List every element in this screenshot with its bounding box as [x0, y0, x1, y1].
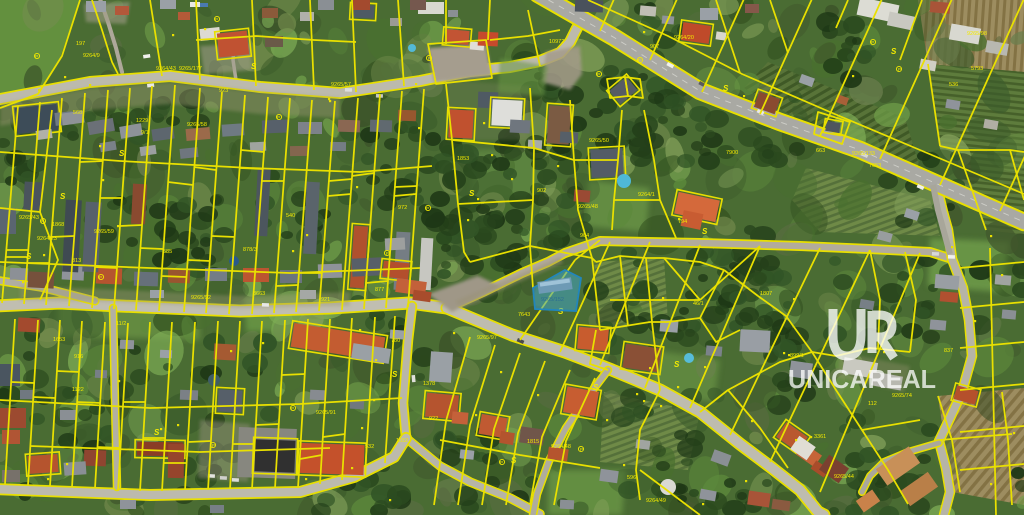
svg-text:922: 922 [429, 416, 438, 422]
svg-text:197: 197 [76, 41, 85, 47]
svg-text:S: S [60, 192, 66, 201]
svg-text:877: 877 [375, 287, 384, 293]
svg-text:9265/58: 9265/58 [187, 122, 207, 128]
svg-text:9265/50: 9265/50 [589, 138, 609, 144]
svg-text:9264/9: 9264/9 [83, 53, 100, 59]
svg-text:46/1: 46/1 [693, 301, 704, 307]
svg-text:5793: 5793 [971, 66, 983, 72]
svg-text:9265/44: 9265/44 [834, 474, 854, 480]
svg-text:S: S [723, 84, 729, 93]
svg-text:9265/97: 9265/97 [477, 335, 497, 341]
svg-text:9264/49: 9264/49 [646, 498, 666, 504]
svg-text:9265/133: 9265/133 [852, 151, 875, 157]
svg-text:P: P [426, 206, 429, 211]
svg-text:9265/92: 9265/92 [191, 295, 211, 301]
svg-text:585: 585 [163, 249, 172, 255]
svg-text:P: P [500, 460, 503, 465]
svg-text:P: P [277, 115, 280, 120]
svg-text:1868: 1868 [52, 222, 64, 228]
svg-text:568: 568 [73, 110, 82, 116]
svg-text:S: S [511, 456, 517, 465]
svg-text:7653: 7653 [869, 163, 881, 169]
svg-text:923: 923 [219, 88, 228, 94]
svg-text:9265/91: 9265/91 [316, 410, 336, 416]
svg-text:S: S [154, 428, 160, 437]
svg-text:9264/1: 9264/1 [638, 192, 655, 198]
svg-text:921: 921 [321, 297, 330, 303]
svg-text:1229: 1229 [136, 118, 148, 124]
svg-text:P: P [898, 67, 901, 72]
svg-text:11/2: 11/2 [116, 321, 126, 327]
svg-text:S: S [119, 149, 125, 158]
svg-text:8663: 8663 [253, 291, 265, 297]
svg-text:3361: 3361 [814, 434, 826, 440]
svg-text:7643: 7643 [518, 312, 530, 318]
svg-text:907: 907 [650, 44, 659, 50]
svg-text:9264/20: 9264/20 [674, 35, 694, 41]
svg-text:9265/59: 9265/59 [94, 229, 114, 235]
svg-text:1815: 1815 [527, 439, 539, 445]
svg-text:P: P [597, 72, 600, 77]
svg-text:9265/152: 9265/152 [541, 297, 564, 303]
svg-text:1552: 1552 [396, 438, 408, 444]
svg-text:P: P [212, 443, 215, 448]
svg-text:837: 837 [944, 348, 953, 354]
svg-text:916: 916 [74, 354, 83, 360]
svg-text:904: 904 [580, 233, 589, 239]
svg-text:972: 972 [398, 205, 407, 211]
svg-text:813: 813 [72, 258, 81, 264]
svg-text:P: P [428, 56, 431, 61]
svg-text:1853: 1853 [457, 156, 469, 162]
svg-text:9264/23: 9264/23 [37, 236, 57, 242]
svg-text:S: S [593, 383, 599, 392]
svg-text:1378: 1378 [423, 381, 435, 387]
svg-text:P: P [215, 17, 218, 22]
svg-text:P: P [580, 447, 583, 452]
svg-text:7900: 7900 [726, 150, 738, 156]
svg-text:S: S [469, 189, 475, 198]
svg-text:S: S [674, 360, 680, 369]
svg-text:9264/48: 9264/48 [551, 444, 571, 450]
svg-text:S: S [251, 62, 257, 71]
svg-text:1653: 1653 [53, 337, 65, 343]
svg-text:9265/43: 9265/43 [19, 215, 39, 221]
svg-text:P: P [291, 406, 294, 411]
svg-text:1807: 1807 [760, 291, 772, 297]
svg-text:10972: 10972 [549, 39, 564, 45]
svg-text:663: 663 [816, 148, 825, 154]
svg-text:S: S [26, 252, 32, 261]
svg-text:P: P [386, 251, 389, 256]
svg-text:P: P [638, 58, 641, 63]
svg-text:UNICAREAL: UNICAREAL [788, 364, 936, 394]
svg-text:S: S [702, 227, 708, 236]
svg-text:P: P [35, 54, 38, 59]
svg-text:9265/98: 9265/98 [967, 31, 987, 37]
svg-text:P: P [41, 219, 44, 224]
svg-text:9264/43: 9264/43 [156, 66, 176, 72]
svg-text:P: P [871, 40, 874, 45]
svg-text:878/3: 878/3 [243, 247, 257, 253]
svg-text:902: 902 [537, 188, 546, 194]
svg-text:794: 794 [678, 219, 687, 225]
svg-text:1122: 1122 [72, 387, 84, 393]
svg-text:S: S [392, 370, 398, 379]
svg-text:536: 536 [949, 82, 958, 88]
svg-text:112: 112 [868, 401, 877, 407]
svg-text:899/1: 899/1 [790, 353, 804, 359]
svg-text:S: S [891, 47, 897, 56]
svg-text:P: P [99, 275, 102, 280]
svg-text:596: 596 [627, 475, 636, 481]
svg-text:780: 780 [391, 338, 400, 344]
svg-text:9265/48: 9265/48 [578, 204, 598, 210]
svg-text:9265/57: 9265/57 [331, 82, 351, 88]
svg-text:540: 540 [286, 213, 295, 219]
svg-text:9/1: 9/1 [141, 130, 149, 136]
svg-text:532: 532 [365, 444, 374, 450]
svg-text:9265/177: 9265/177 [179, 66, 202, 72]
